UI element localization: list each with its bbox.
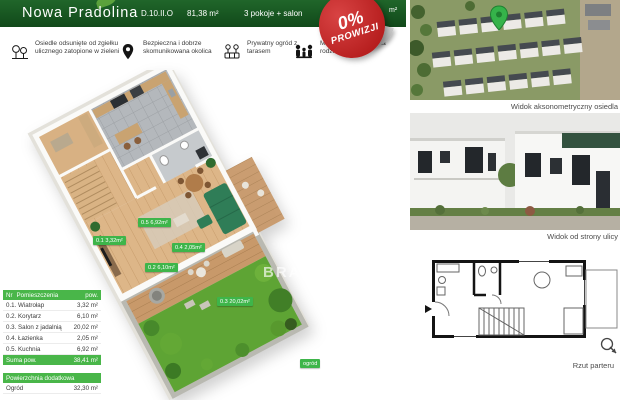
caption-ground-plan: Rzut parteru <box>573 361 614 370</box>
area-tables: NrPomieszczenia pow. 0.1. Wiatrołap 3,32… <box>3 290 101 394</box>
extra-table-header: Powierzchnia dodatkowa <box>3 373 101 383</box>
project-name: Nowa Pradolina <box>22 5 138 21</box>
sum-value: 38,41 m² <box>74 357 98 364</box>
trees-icon <box>10 42 30 62</box>
room-name: 0.3. Salon z jadalnią <box>6 324 62 331</box>
garden-label: ogród <box>300 359 320 368</box>
extra-area: 32,30 m² <box>74 385 98 392</box>
room-label-kuchnia: 0.5 6,92m² <box>138 218 171 227</box>
extra-name: Ogród <box>6 385 23 392</box>
room-name: 0.5. Kuchnia <box>6 346 40 353</box>
room-label-korytarz: 0.2 6,10m² <box>145 263 178 272</box>
table-sum-row: Suma pow. 38,41 m² <box>3 355 101 365</box>
feature-text: Bezpieczna i dobrze skomunikowana okolic… <box>143 40 224 62</box>
north-arrow-icon <box>599 336 619 356</box>
axonometric-view-image <box>410 0 620 100</box>
table-row: 0.5. Kuchnia 6,92 m² <box>3 344 101 355</box>
room-name: 0.4. Łazienka <box>6 335 43 342</box>
room-area: 2,05 m² <box>77 335 98 342</box>
unit-rooms: 3 pokoje + salon <box>244 9 303 18</box>
room-area: 3,32 m² <box>77 302 98 309</box>
extra-header-label: Powierzchnia dodatkowa <box>6 375 74 382</box>
col-name: Pomieszczenia <box>17 292 59 299</box>
family-icon <box>293 42 315 62</box>
unit-area: 81,38 m² <box>187 9 219 18</box>
room-name: 0.1. Wiatrołap <box>6 302 44 309</box>
caption-street: Widok od strony ulicy <box>547 232 618 241</box>
room-area: 20,02 m² <box>74 324 98 331</box>
caption-axonometric: Widok aksonometryczny osiedla <box>511 102 618 111</box>
room-label-salon: 0.3 20,02m² <box>217 297 253 306</box>
garden-fence-icon <box>222 42 242 62</box>
room-area: 6,10 m² <box>77 313 98 320</box>
table-row: Ogród 32,30 m² <box>3 383 101 394</box>
table-row: 0.4. Łazienka 2,05 m² <box>3 333 101 344</box>
gallery-column: Widok aksonometryczny osiedla Widok od s <box>410 0 620 400</box>
street-view-image <box>410 113 620 230</box>
room-area: 6,92 m² <box>77 346 98 353</box>
sum-label: Suma pow. <box>6 357 37 364</box>
unit-id: D.10.II.O <box>141 9 173 18</box>
col-nr: Nr <box>6 292 13 299</box>
room-name: 0.2. Korytarz <box>6 313 41 320</box>
table-row: 0.2. Korytarz 6,10 m² <box>3 311 101 322</box>
table-row: 0.1. Wiatrołap 3,32 m² <box>3 300 101 311</box>
brochure-page: Nowa Pradolina D.10.II.O 81,38 m² 3 poko… <box>0 0 620 400</box>
ground-floor-plan-drawing <box>424 250 620 354</box>
watermark: BRAS <box>263 264 314 281</box>
col-area: pow. <box>85 292 98 299</box>
room-label-lazienka: 0.4 2,05m² <box>172 243 205 252</box>
zero-commission-badge: 0% PROWIZJI <box>313 0 391 64</box>
rooms-table-header: NrPomieszczenia pow. <box>3 290 101 300</box>
feature-greenery: Osiedle odsunięte od zgiełku ulicznego z… <box>10 40 132 62</box>
feature-location: Bezpieczna i dobrze skomunikowana okolic… <box>118 40 224 62</box>
table-row: 0.3. Salon z jadalnią 20,02 m² <box>3 322 101 333</box>
map-pin-icon <box>118 42 138 62</box>
room-label-wiatrolap: 0.1 3,32m² <box>93 236 126 245</box>
